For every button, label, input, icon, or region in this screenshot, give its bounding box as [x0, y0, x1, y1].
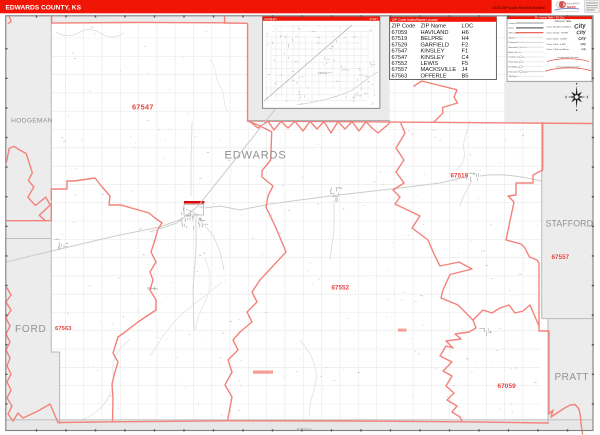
svg-text:HODGEMAN: HODGEMAN [11, 117, 53, 124]
svg-text:ZIP Inserts Table - KS City: ZIP Inserts Table - KS City [535, 17, 565, 20]
svg-text:2020 ZIP Code Redline Edition: 2020 ZIP Code Redline Edition [492, 6, 546, 10]
svg-text:Streets: Streets [509, 36, 517, 39]
svg-text:67557: 67557 [392, 67, 408, 73]
svg-text:OFFERLE: OFFERLE [421, 73, 447, 79]
svg-text:B5: B5 [462, 73, 469, 79]
svg-text:67519: 67519 [392, 36, 408, 42]
svg-text:C4: C4 [462, 55, 469, 61]
svg-text:F5: F5 [462, 61, 469, 67]
svg-text:67552: 67552 [392, 61, 408, 67]
svg-text:67529: 67529 [392, 42, 408, 48]
svg-text:ZIP Name: ZIP Name [421, 24, 447, 30]
svg-text:Cities 1,000 and Below: Cities 1,000 and Below [547, 48, 570, 51]
svg-text:67547: 67547 [392, 49, 408, 55]
svg-text:LEWIS: LEWIS [421, 61, 439, 67]
svg-text:KINSLEY: KINSLEY [421, 55, 445, 61]
svg-text:Cities 100,000 and Above: Cities 100,000 and Above [547, 26, 573, 29]
svg-text:67519: 67519 [451, 172, 469, 179]
svg-text:67557: 67557 [552, 254, 570, 261]
svg-text:EDWARDS: EDWARDS [225, 149, 287, 161]
svg-text:PRATT: PRATT [555, 372, 590, 383]
svg-text:Incorporated City Limits: Incorporated City Limits [557, 56, 578, 59]
svg-text:67563: 67563 [392, 73, 408, 79]
svg-text:EDWARDS COUNTY, KS: EDWARDS COUNTY, KS [6, 5, 82, 12]
svg-text:State: State [509, 27, 515, 30]
svg-text:Cities per Table: Cities per Table [555, 20, 572, 23]
svg-text:H4: H4 [462, 36, 469, 42]
svg-text:BELPRE: BELPRE [421, 36, 444, 42]
svg-text:HAVILAND: HAVILAND [421, 30, 449, 36]
svg-text:LOC: LOC [462, 24, 474, 30]
svg-text:Cities 5,000 - 24,999: Cities 5,000 - 24,999 [547, 38, 568, 41]
svg-text:H6: H6 [462, 30, 469, 36]
svg-text:FORD: FORD [15, 324, 47, 335]
svg-text:Cities 1,000 - 4,999: Cities 1,000 - 4,999 [547, 43, 567, 46]
svg-text:F2: F2 [462, 42, 469, 48]
svg-text:67059: 67059 [392, 30, 408, 36]
svg-text:67059: 67059 [498, 383, 517, 390]
svg-text:STAFFORD: STAFFORD [546, 219, 594, 229]
svg-text:KINSLEY: KINSLEY [265, 17, 278, 21]
svg-text:67563: 67563 [55, 326, 72, 332]
svg-text:GARFIELD: GARFIELD [421, 42, 449, 48]
svg-text:Cities 25,000 - 99,999: Cities 25,000 - 99,999 [547, 32, 569, 35]
svg-text:County: County [509, 22, 517, 25]
svg-text:67547: 67547 [132, 102, 154, 111]
svg-text:City: City [580, 42, 586, 47]
svg-text:ZIP Code Index/Name Locator: ZIP Code Index/Name Locator [392, 18, 439, 22]
svg-text:67552: 67552 [332, 284, 350, 291]
svg-text:KINSLEY: KINSLEY [318, 71, 329, 75]
svg-text:J4: J4 [462, 67, 468, 73]
svg-text:F1: F1 [462, 49, 469, 55]
svg-text:KINSLEY: KINSLEY [421, 49, 445, 55]
svg-text:MACKSVILLE: MACKSVILLE [421, 67, 457, 73]
svg-text:67547: 67547 [392, 55, 408, 61]
svg-text:67547: 67547 [370, 17, 379, 21]
svg-text:ZIP Code: ZIP Code [392, 24, 416, 30]
